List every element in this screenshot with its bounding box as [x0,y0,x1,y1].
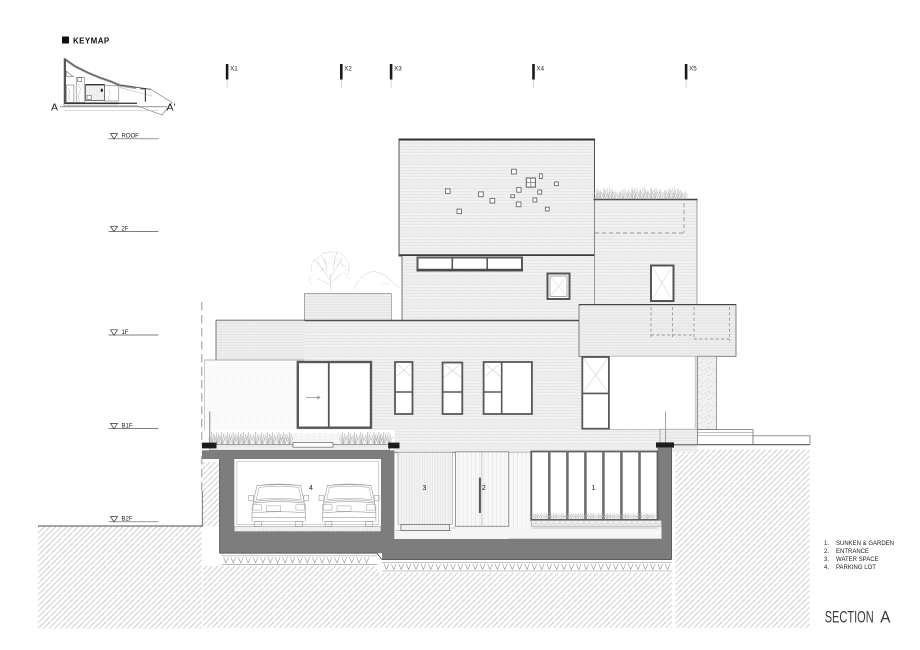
svg-text:1: 1 [592,485,596,492]
svg-text:PARKING LOT: PARKING LOT [836,565,876,571]
svg-text:X4: X4 [537,66,545,73]
svg-text:X3: X3 [394,66,402,73]
svg-text:SECTION: SECTION [825,608,874,626]
svg-text:A: A [51,102,58,114]
svg-text:X2: X2 [344,66,352,73]
svg-text:3: 3 [423,485,427,492]
svg-text:X5: X5 [689,66,697,73]
svg-text:ENTRANCE: ENTRANCE [836,549,869,555]
svg-text:SUNKEN & GARDEN: SUNKEN & GARDEN [836,541,894,547]
svg-text:A': A' [167,102,176,114]
svg-text:2.: 2. [824,549,829,555]
svg-text:1.: 1. [824,541,829,547]
svg-text:4: 4 [309,485,313,492]
svg-text:A: A [880,608,890,626]
svg-text:4.: 4. [824,565,829,571]
svg-text:2: 2 [482,485,486,492]
svg-text:KEYMAP: KEYMAP [73,37,110,46]
svg-text:3.: 3. [824,557,829,563]
svg-text:X1: X1 [230,66,238,73]
svg-text:WATER SPACE: WATER SPACE [836,557,879,563]
